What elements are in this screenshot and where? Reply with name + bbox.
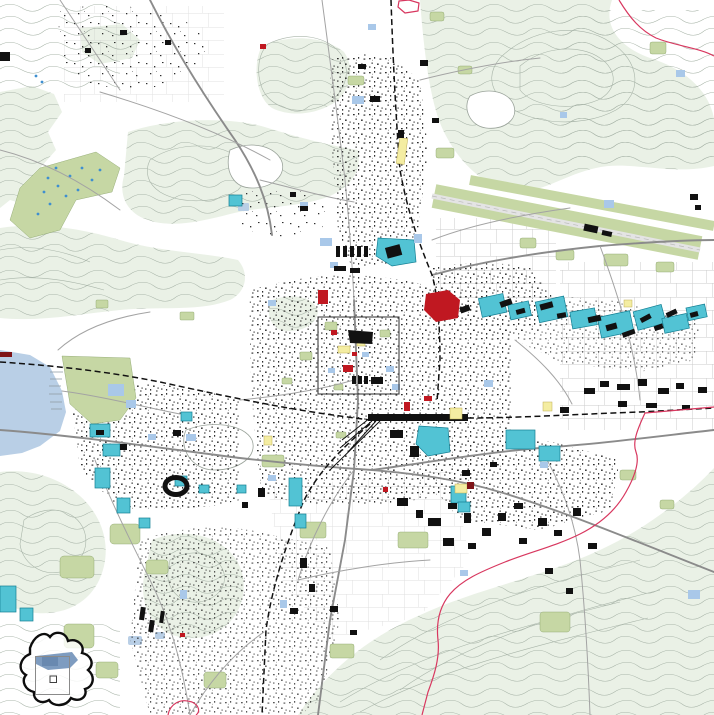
city-map[interactable] bbox=[0, 0, 714, 715]
